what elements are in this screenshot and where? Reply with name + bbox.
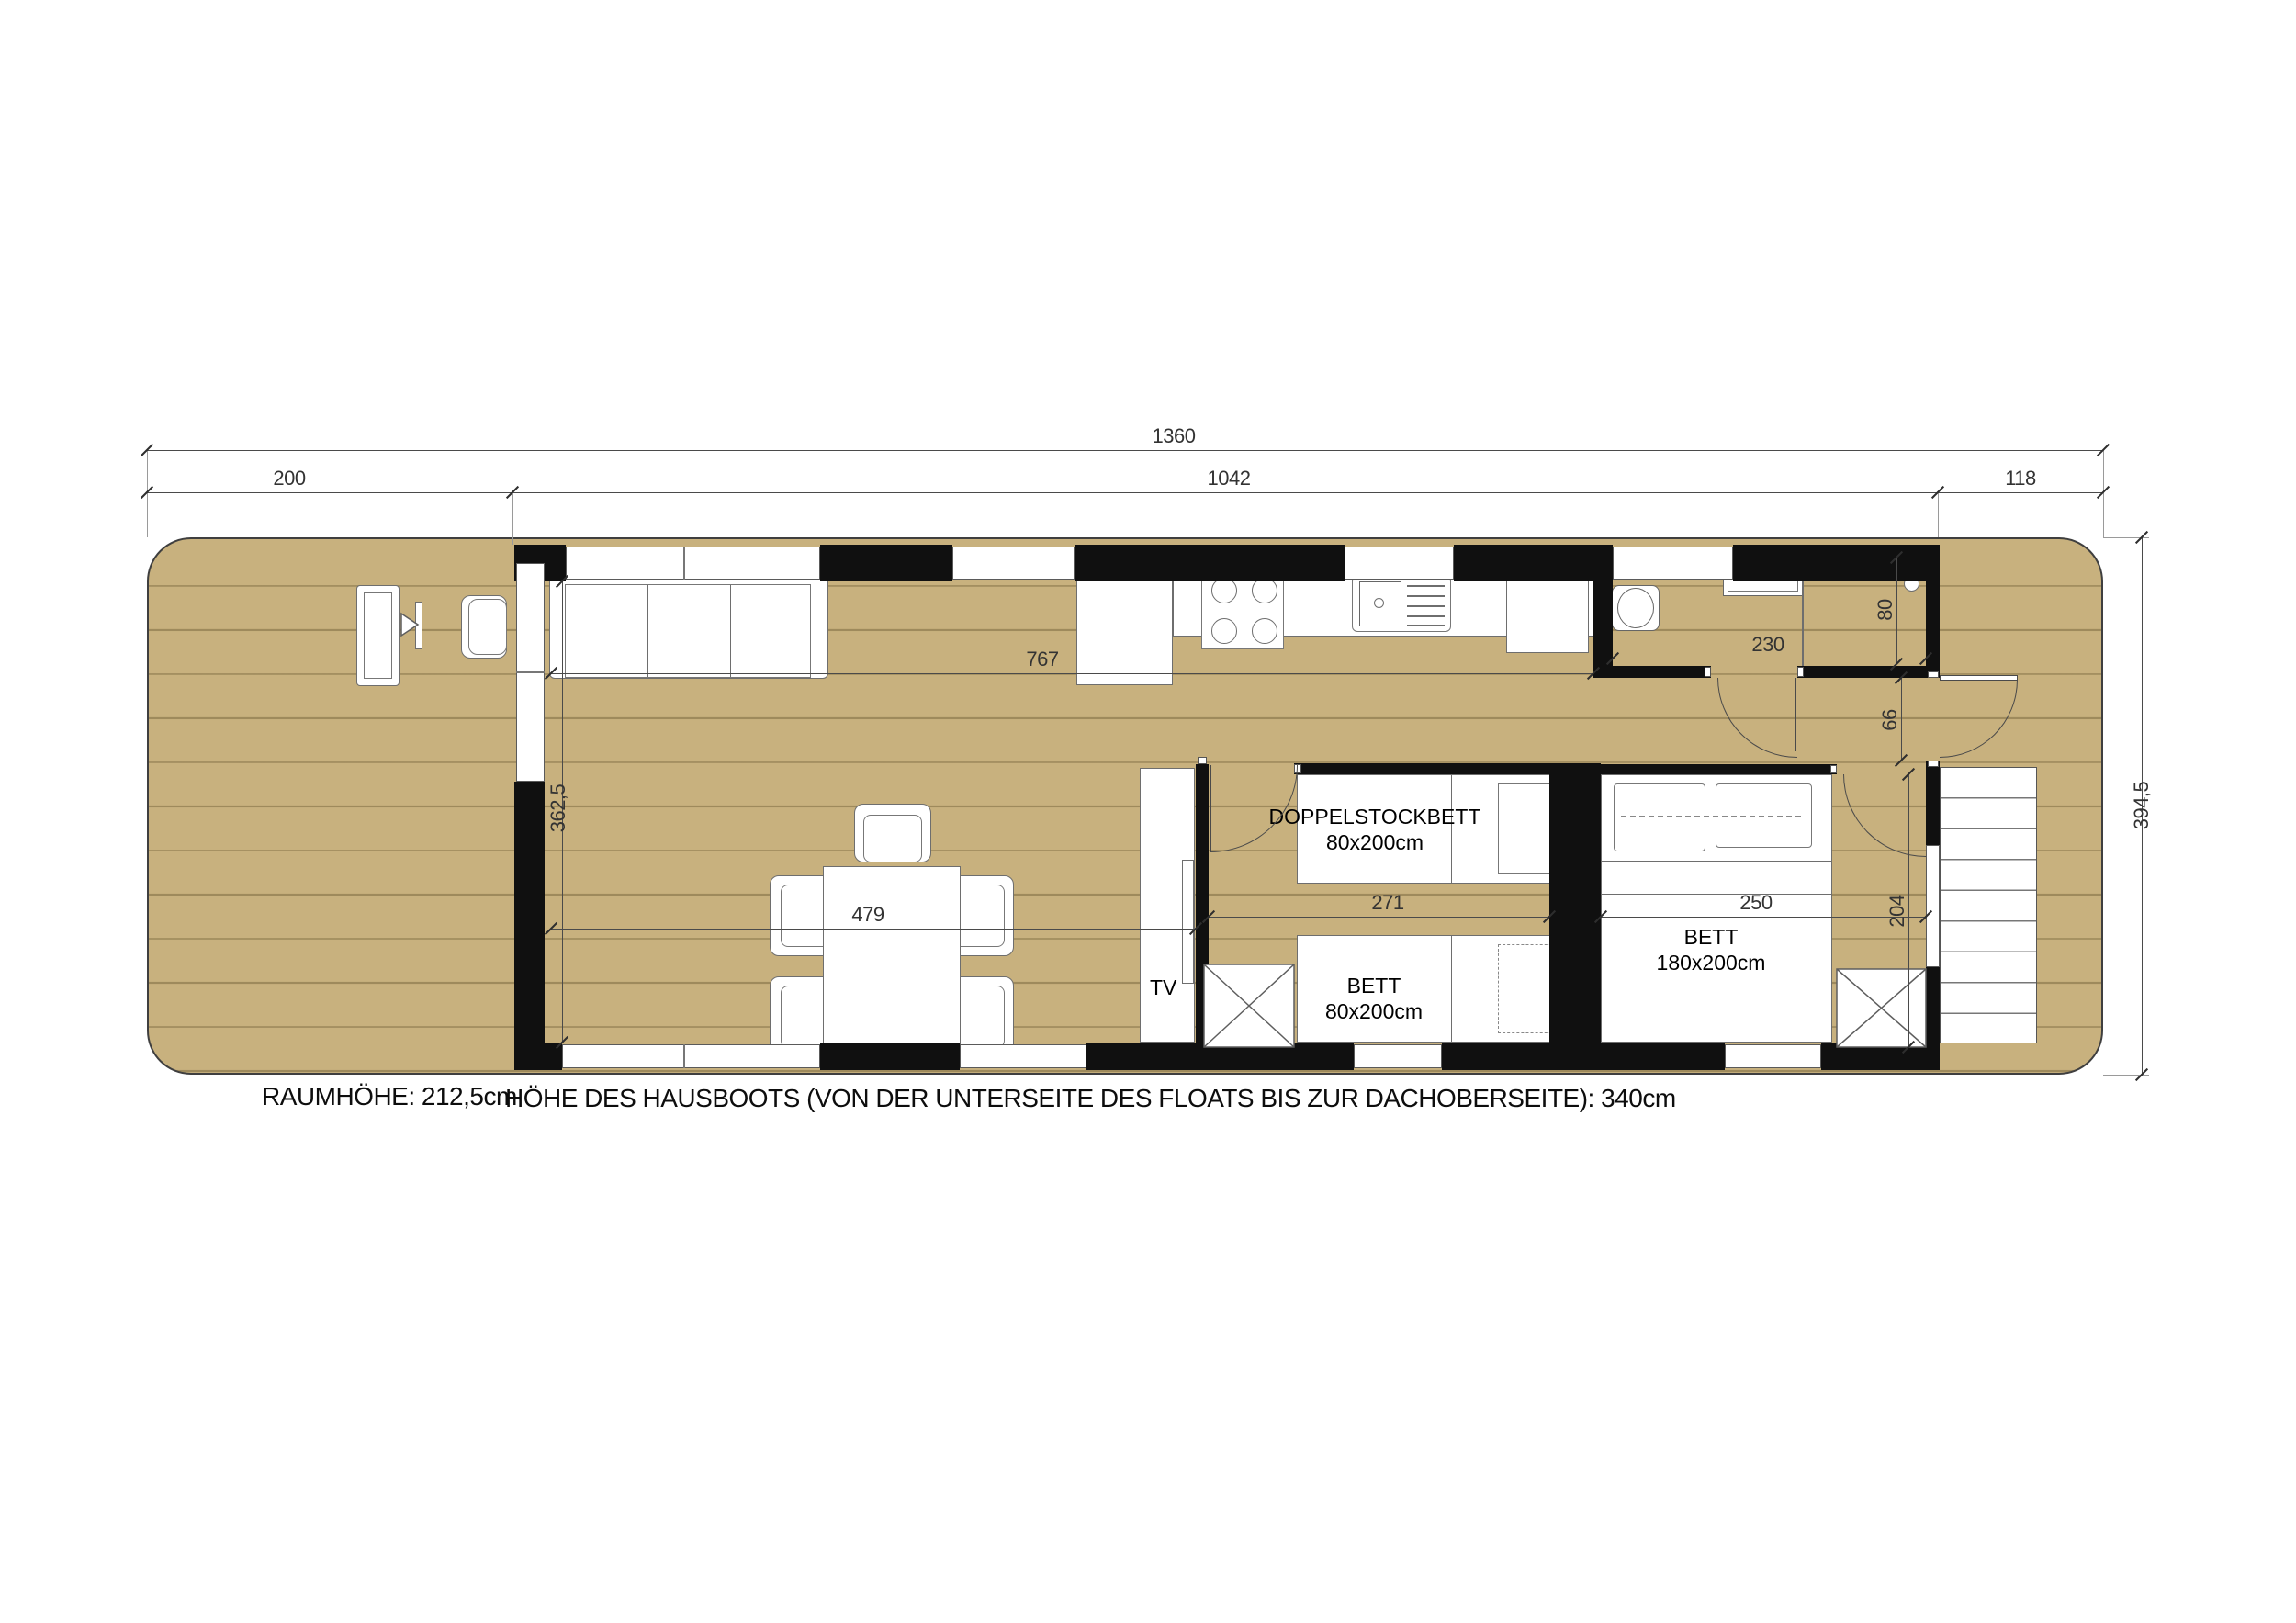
dim-label-living-depth: 362,5 xyxy=(546,767,570,850)
door-jamb xyxy=(1797,667,1804,677)
wall-segment xyxy=(1075,545,1345,581)
master-top-wall xyxy=(1601,764,1837,774)
bathroom-left-wall xyxy=(1593,545,1613,678)
houseboat-floorplan: TV DOPPELSTOCKBETT 80x200cm BETT 80x200c… xyxy=(0,0,2296,1623)
extension-line xyxy=(2103,450,2104,537)
bathroom-bottom-wall xyxy=(1613,666,1711,678)
dim-label-bath-width: 230 xyxy=(1727,633,1809,657)
wall-segment xyxy=(514,782,545,1070)
sofa-cushion-divider xyxy=(647,585,648,677)
drainboard-line xyxy=(1407,625,1445,626)
stove-burner xyxy=(1211,578,1237,603)
stairs xyxy=(1940,767,2037,1043)
bunk-bed-label: DOPPELSTOCKBETT xyxy=(1265,805,1485,828)
dim-label-cabin-width: 1042 xyxy=(1187,467,1270,490)
extension-line xyxy=(512,492,513,545)
drainboard-line xyxy=(1407,615,1445,617)
dim-label-living-length: 479 xyxy=(827,903,909,927)
window xyxy=(960,1044,1086,1068)
duvet-fold-line xyxy=(1601,861,1832,862)
drainboard-line xyxy=(1407,605,1445,607)
window xyxy=(1613,547,1733,580)
window xyxy=(562,1044,820,1068)
tv-label: TV xyxy=(1150,975,1176,1000)
sofa-cushion-divider xyxy=(730,585,731,677)
window xyxy=(952,547,1075,580)
dim-line-bath-width xyxy=(1613,659,1926,659)
wall-segment xyxy=(820,545,952,581)
dim-label-total-depth: 394,5 xyxy=(2130,764,2154,847)
stove-burner xyxy=(1252,618,1277,644)
wall-segment xyxy=(1926,761,1940,845)
dim-label-terrace-width: 200 xyxy=(248,467,331,490)
rooms-divider-wall xyxy=(1549,763,1601,1043)
door-jamb xyxy=(1198,757,1207,764)
tv-partition-wall xyxy=(1196,764,1209,1043)
dining-table xyxy=(823,866,961,1066)
window-mullion xyxy=(683,1044,685,1068)
extension-line xyxy=(1938,492,1939,537)
wall-segment xyxy=(1733,545,1940,581)
wall-segment xyxy=(514,545,545,563)
door-jamb xyxy=(1928,761,1939,767)
wall-segment xyxy=(1454,545,1613,581)
bunk-bed-divider xyxy=(1451,774,1452,884)
toilet-bowl xyxy=(1617,588,1654,628)
door-jamb xyxy=(1705,667,1711,677)
wall-segment xyxy=(1926,967,1940,1070)
bunk-bed-size: 80x200cm xyxy=(1301,830,1448,854)
sofa-seat xyxy=(565,584,811,678)
dining-chair-seat xyxy=(863,815,922,862)
wall-segment xyxy=(820,1043,960,1070)
stove-burner xyxy=(1211,618,1237,644)
dim-line-width-chain xyxy=(147,492,2103,493)
note-room-height: RAUMHÖHE: 212,5cm xyxy=(262,1082,517,1111)
drainboard-line xyxy=(1407,595,1445,597)
tv-screen xyxy=(1182,860,1194,984)
window-mullion xyxy=(683,547,685,580)
door-jamb xyxy=(1830,765,1837,773)
dim-line-living-length xyxy=(551,929,1196,930)
pillow-dashed-line xyxy=(1621,816,1801,817)
window xyxy=(1926,845,1940,967)
terrace-chair-seat xyxy=(468,599,507,655)
pillow xyxy=(1614,783,1705,851)
terrace-table-top xyxy=(364,592,392,679)
stove-burner xyxy=(1252,578,1277,603)
dim-label-master-depth: 204 xyxy=(1885,870,1909,952)
window xyxy=(1725,1044,1821,1068)
dim-line-master-width xyxy=(1601,917,1926,918)
wall-segment xyxy=(1821,1043,1940,1070)
double-bed-size: 180x200cm xyxy=(1638,951,1784,975)
dim-label-total-width: 1360 xyxy=(1132,424,1215,448)
window xyxy=(1354,1044,1442,1068)
dim-line-kids-width xyxy=(1209,917,1549,918)
single-bed-label: BETT xyxy=(1300,974,1447,997)
dim-label-entry-door: 66 xyxy=(1878,679,1902,761)
extension-line xyxy=(147,450,148,537)
dim-line-total-width xyxy=(147,450,2103,451)
dim-label-living-kitchen: 767 xyxy=(1001,648,1084,671)
double-bed-label: BETT xyxy=(1638,925,1784,949)
wall-segment xyxy=(1442,1043,1725,1070)
door-jamb xyxy=(1928,671,1939,678)
dim-label-stairs-width: 118 xyxy=(1979,467,2062,490)
wall-segment xyxy=(1086,1043,1354,1070)
dim-label-master-width: 250 xyxy=(1715,891,1797,915)
window xyxy=(1345,547,1454,580)
drainboard-line xyxy=(1407,585,1445,587)
dim-label-shower-width: 80 xyxy=(1874,569,1897,651)
terrace-pole xyxy=(415,602,422,649)
kids-room-top-wall xyxy=(1294,763,1573,774)
single-bed-divider xyxy=(1451,935,1452,1043)
dim-label-kids-width: 271 xyxy=(1346,891,1429,915)
dim-line-living-kitchen xyxy=(551,673,1593,674)
single-bed-size: 80x200cm xyxy=(1300,999,1447,1023)
wall-segment xyxy=(1926,545,1940,678)
window xyxy=(566,547,820,580)
sink-drain xyxy=(1374,598,1384,608)
window-mullion xyxy=(516,671,545,673)
note-boat-height: HÖHE DES HAUSBOOTS (VON DER UNTERSEITE D… xyxy=(505,1084,1676,1113)
